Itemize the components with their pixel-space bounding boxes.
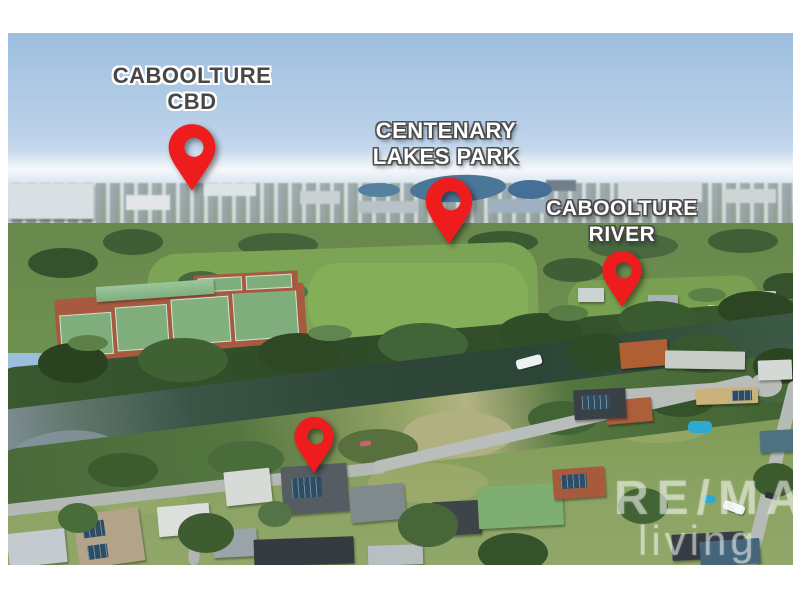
- label-line: RIVER: [546, 222, 698, 248]
- map-pin-caboolture-cbd: [167, 115, 217, 200]
- label-line: CBD: [113, 89, 272, 115]
- tree-highlight: [548, 305, 588, 321]
- map-pin-centenary-lakes-park: [424, 170, 474, 252]
- house-roof: [573, 388, 626, 421]
- tree-highlight: [68, 335, 108, 351]
- house-roof: [349, 483, 407, 524]
- label-caboolture-river: CABOOLTURE RIVER: [546, 196, 698, 248]
- aerial-photo: RE/MAX living CABOOLTURE CBD CENTENARY L…: [8, 33, 793, 565]
- watermark-sub: living: [638, 517, 758, 565]
- cbd-building: [300, 191, 340, 204]
- house-roof: [665, 350, 745, 369]
- label-line: CENTENARY: [373, 118, 519, 144]
- solar-panels: [732, 390, 752, 401]
- label-line: LAKES PARK: [373, 144, 519, 170]
- cbd-building: [358, 201, 418, 213]
- solar-panels: [87, 543, 109, 560]
- tree: [478, 533, 548, 565]
- tree: [708, 229, 778, 253]
- cbd-building: [126, 195, 170, 210]
- tree: [28, 248, 98, 278]
- label-line: CABOOLTURE: [113, 63, 272, 89]
- swimming-pool: [688, 421, 712, 433]
- tennis-court: [246, 274, 293, 290]
- house-roof-terracotta: [619, 339, 669, 369]
- solar-panels: [560, 473, 587, 489]
- house-roof-green: [477, 483, 564, 529]
- lake: [358, 183, 400, 197]
- house-roof: [368, 544, 424, 565]
- tree: [103, 229, 163, 255]
- tree-highlight: [688, 288, 726, 302]
- house-roof-tan: [696, 387, 759, 405]
- map-pin-subject-property: [293, 410, 335, 480]
- tree: [88, 453, 158, 487]
- map-pin-caboolture-river: [601, 246, 643, 312]
- tree: [58, 503, 98, 533]
- tree: [258, 501, 292, 527]
- cbd-building: [8, 183, 94, 219]
- label-centenary-lakes-park: CENTENARY LAKES PARK: [373, 118, 519, 170]
- cbd-building: [724, 189, 776, 203]
- screenshot-root: { "markers": [ {"id":"caboolture-cbd","l…: [0, 0, 800, 600]
- house-roof-terracotta: [552, 466, 606, 500]
- label-line: CABOOLTURE: [546, 196, 698, 222]
- label-caboolture-cbd: CABOOLTURE CBD: [113, 63, 272, 115]
- house-roof: [223, 468, 272, 507]
- tree: [138, 338, 228, 382]
- house-roof: [254, 536, 355, 565]
- tree: [398, 503, 458, 547]
- house-roof: [8, 528, 68, 565]
- house-roof: [758, 359, 793, 380]
- house-roof: [759, 429, 793, 453]
- tree: [543, 258, 603, 282]
- tree: [178, 513, 234, 553]
- solar-panels: [582, 394, 611, 409]
- tree-highlight: [308, 325, 352, 341]
